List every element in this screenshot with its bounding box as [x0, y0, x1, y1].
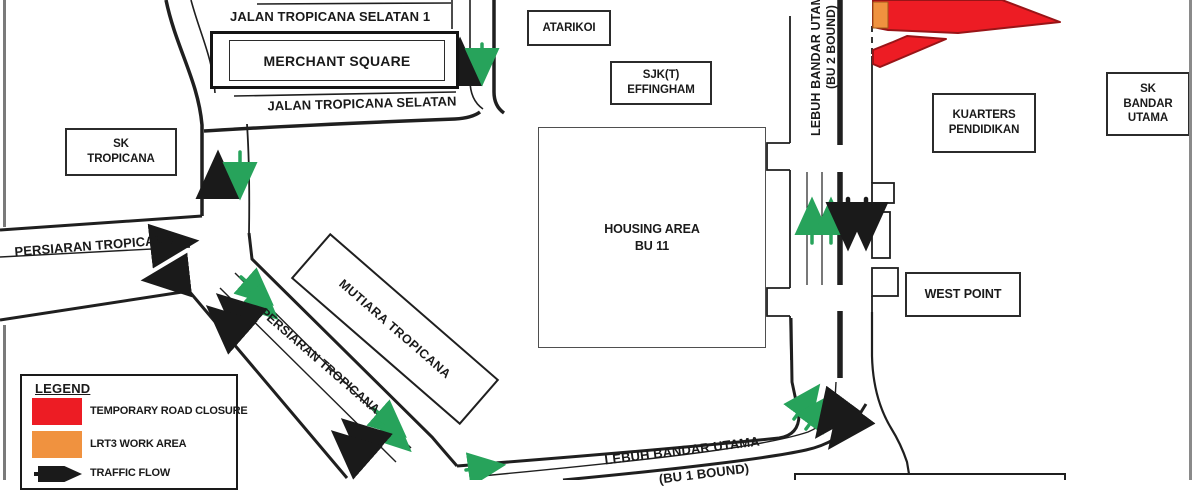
legend: LEGEND TEMPORARY ROAD CLOSURE LRT3 WORK …: [20, 374, 238, 490]
traffic-flow-arrow-black-nw: [341, 439, 366, 461]
road-edge: [257, 3, 451, 4]
legend-title: LEGEND: [35, 381, 90, 396]
legend-item-label: TEMPORARY ROAD CLOSURE: [90, 405, 248, 417]
legend-item-work-area: LRT3 WORK AREA: [22, 431, 236, 458]
closure-swatch: [32, 398, 82, 425]
page-border-left: [3, 0, 6, 227]
road-edge: [204, 112, 480, 131]
road-label-bu2-bound: (BU 2 BOUND): [824, 0, 838, 95]
road-edge: [790, 16, 791, 360]
traffic-flow-arrow-black-nw: [226, 302, 251, 324]
road-edge: [0, 216, 202, 230]
road-edge: [166, 0, 202, 216]
legend-item-label: LRT3 WORK AREA: [90, 438, 186, 450]
lrt3-work-area: [873, 2, 888, 28]
traffic-flow-arrow-black-left: [154, 276, 181, 279]
road-label-lebuh-bandar-utama-bu2: LEBUH BANDAR UTAMA: [809, 0, 823, 136]
closure-shapes: [873, 0, 1060, 67]
sk-bandar-utama-box: SK BANDAR UTAMA: [1106, 72, 1190, 136]
road-edge: [247, 124, 249, 233]
traffic-flow-arrow-green-right: [466, 466, 496, 470]
driveway-pocket: [872, 183, 894, 203]
cutoff-box: [795, 474, 1065, 480]
sjkt-effingham-box: SJK(T) EFFINGHAM: [610, 61, 712, 105]
merchant-square-label: MERCHANT SQUARE: [229, 40, 445, 81]
housing-area-bu11-box: HOUSING AREA BU 11: [538, 127, 766, 348]
work-area-swatch: [32, 431, 82, 458]
legend-item-closure: TEMPORARY ROAD CLOSURE: [22, 398, 236, 425]
sk-tropicana-box: SK TROPICANA: [65, 128, 177, 176]
traffic-flow-arrow-black-nw: [216, 314, 241, 336]
driveway-pocket: [872, 268, 898, 296]
page-border-left: [3, 325, 6, 480]
road-lane-line: [807, 172, 822, 285]
merchant-square-box: MERCHANT SQUARE: [210, 31, 459, 89]
road-label-jalan-tropicana-selatan-1: JALAN TROPICANA SELATAN 1: [230, 9, 430, 24]
page-border-right: [1189, 0, 1192, 480]
kuarters-pendidikan-box: KUARTERS PENDIDIKAN: [932, 93, 1036, 153]
legend-item-label: TRAFFIC FLOW: [90, 467, 170, 479]
west-point-box: WEST POINT: [905, 272, 1021, 317]
road-edge: [494, 0, 504, 113]
driveway-pocket: [767, 143, 790, 170]
temporary-road-closure-area: [873, 0, 1060, 33]
road-lane-line: [471, 382, 836, 477]
driveway-pocket: [767, 288, 790, 316]
driveway-pocket: [872, 212, 890, 258]
legend-item-traffic-flow: TRAFFIC FLOW: [22, 464, 236, 488]
traffic-diversion-map: MERCHANT SQUARE SK TROPICANA ATARIKOI SJ…: [0, 0, 1200, 480]
atarikoi-box: ATARIKOI: [527, 10, 611, 46]
temporary-road-closure-area: [873, 36, 946, 67]
road-edge: [872, 312, 910, 480]
